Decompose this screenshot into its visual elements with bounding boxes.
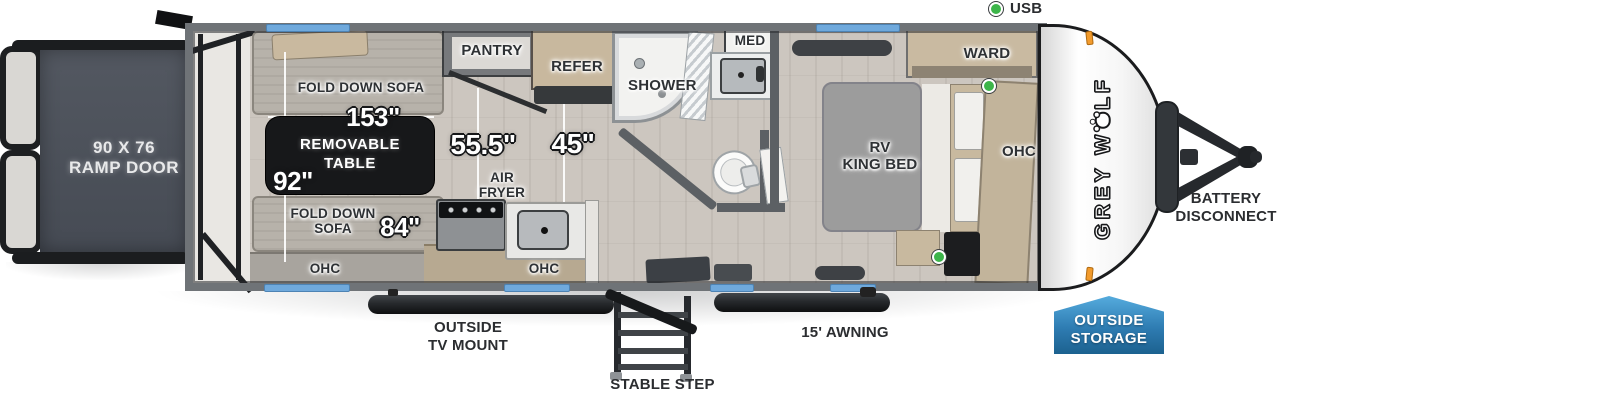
stable-step [608, 286, 704, 382]
awning-label: 15' AWNING [795, 324, 895, 342]
window-kitchen-bottom [504, 284, 570, 292]
hitch-ball-mount [1250, 151, 1262, 163]
brand-logo: GREY WLF [1040, 30, 1168, 285]
step-rung-3 [618, 348, 688, 354]
window-living-top [266, 24, 350, 32]
trailer-body-wall [185, 23, 1047, 291]
window-bedroom-top [816, 24, 900, 32]
outside-storage-line2: STORAGE [1054, 330, 1164, 348]
battery-disconnect-line1: BATTERY [1166, 190, 1286, 208]
floorplan-stage: 90 X 76 RAMP DOOR REMOVABLE TABLE FOLD D… [0, 0, 1600, 403]
ramp-door-label: 90 X 76 RAMP DOOR [48, 138, 200, 179]
outside-storage-label: OUTSIDE STORAGE [1054, 312, 1164, 348]
brand-text-suffix: LF [1092, 76, 1115, 110]
window-living-bottom [264, 284, 350, 292]
paw-icon [1095, 111, 1111, 128]
battery-disconnect-line2: DISCONNECT [1166, 208, 1286, 226]
tv-mount-label-line2: TV MOUNT [408, 337, 528, 355]
brand-text: GREY WLF [1092, 76, 1116, 239]
hitch-jack [1180, 149, 1198, 165]
outside-storage-line1: OUTSIDE [1054, 312, 1164, 330]
tv-mount-bracket [388, 289, 398, 296]
stable-step-label: STABLE STEP [605, 376, 720, 394]
tv-mount-label: OUTSIDE TV MOUNT [408, 319, 528, 354]
ramp-shadow [6, 262, 196, 280]
battery-disconnect-label: BATTERY DISCONNECT [1166, 190, 1286, 225]
ramp-fold-panel-bottom [0, 150, 42, 254]
brand-text-prefix: GREY W [1092, 130, 1115, 239]
awning-motor [860, 287, 876, 297]
ramp-fold-panel-top [0, 46, 42, 150]
window-entry-door [710, 284, 754, 292]
usb-legend-dot [989, 2, 1003, 16]
step-rung-4 [618, 364, 688, 370]
tv-mount-tube [368, 295, 614, 314]
step-rung-2 [618, 330, 688, 336]
ramp-door-label-line1: 90 X 76 [48, 138, 200, 158]
ramp-bottom-bar [12, 252, 190, 264]
ramp-door-label-line2: RAMP DOOR [48, 158, 200, 178]
tv-mount-label-line1: OUTSIDE [408, 319, 528, 337]
usb-legend-label: USB [1010, 0, 1050, 18]
